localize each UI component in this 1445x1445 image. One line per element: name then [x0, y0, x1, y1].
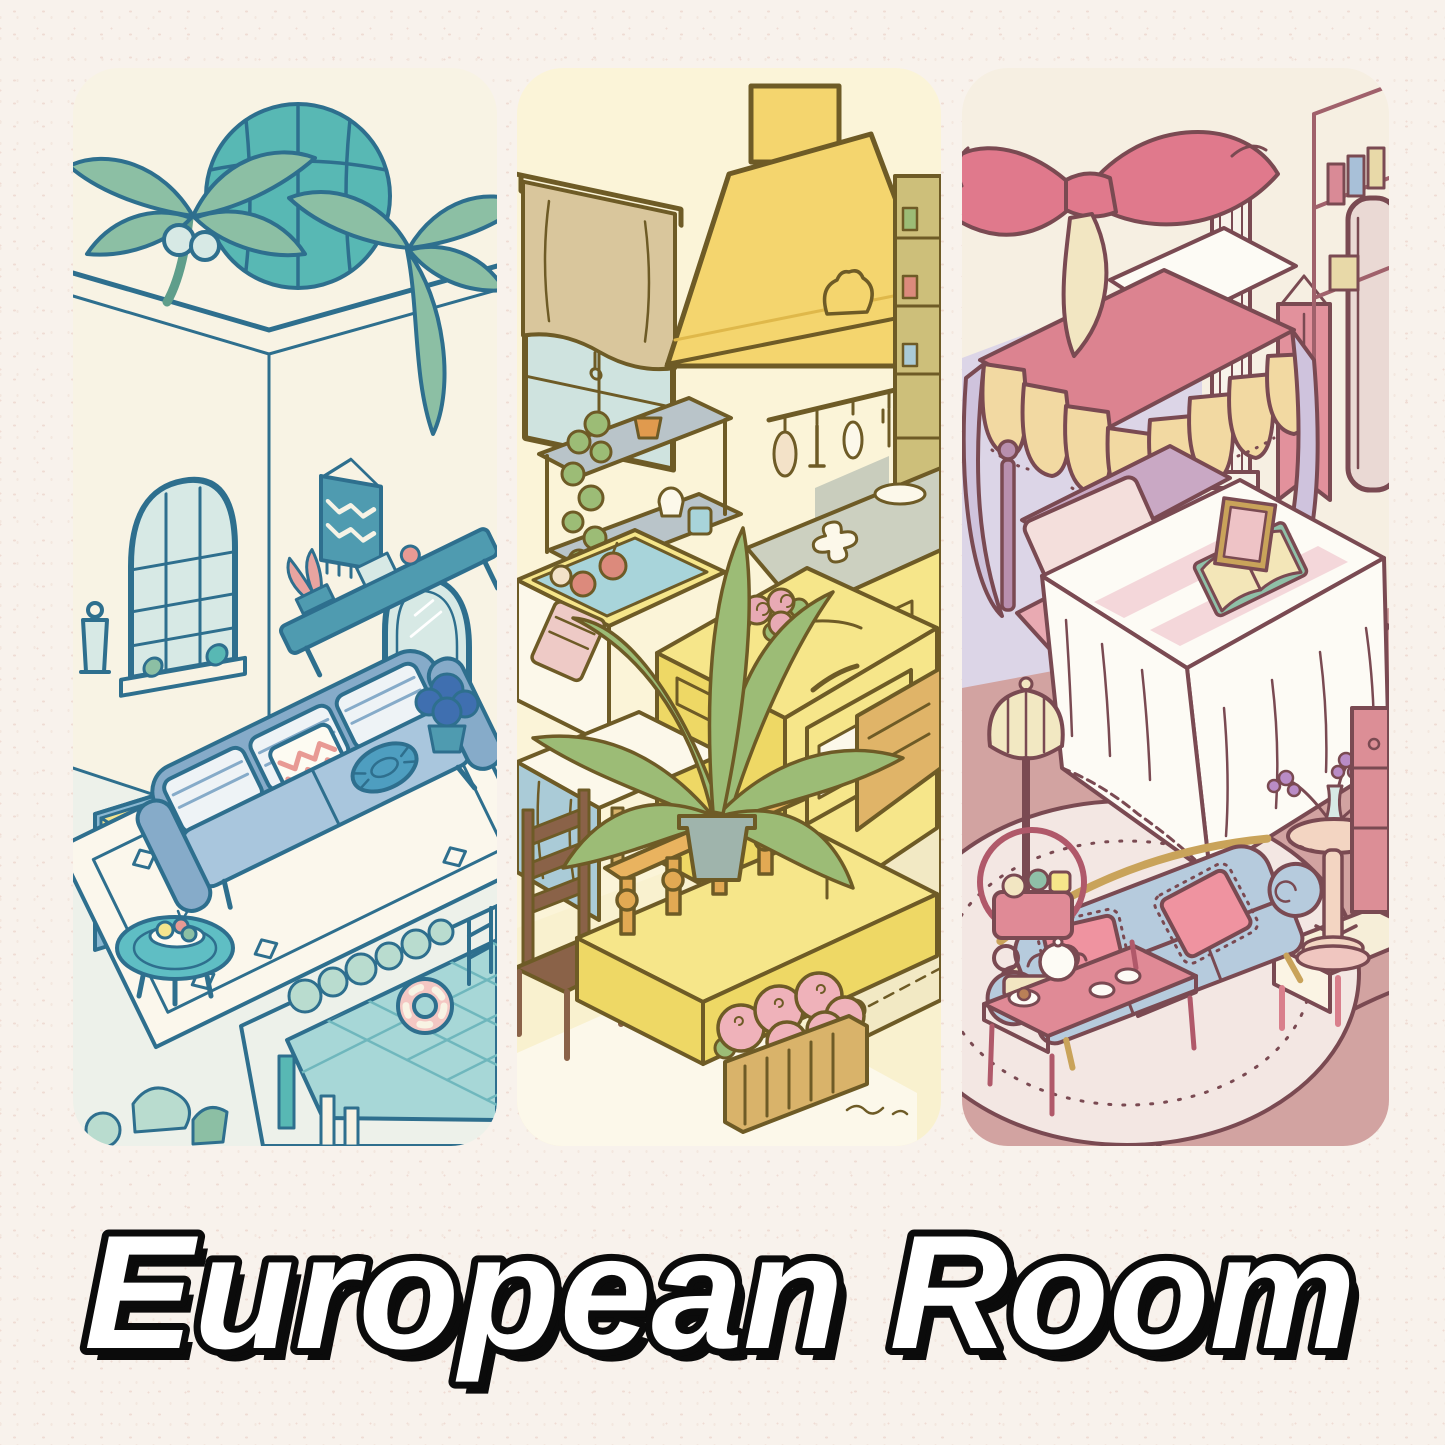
panel-yellow-kitchen-room [517, 68, 941, 1146]
panel-blue-mediterranean-room [73, 68, 497, 1146]
title-banner: European Room European Room [78, 1196, 1388, 1406]
pink-chest [1352, 708, 1389, 912]
yellow-kitchen-illustration [517, 68, 941, 1146]
panel-pink-bedroom-room [962, 68, 1389, 1146]
blue-room-illustration [73, 68, 497, 1146]
page-title: European Room [84, 1202, 1356, 1383]
standing-mirror [1348, 198, 1389, 490]
pink-bedroom-illustration [962, 68, 1389, 1146]
spice-cabinet [895, 176, 941, 486]
picture-frame [1215, 498, 1276, 571]
title-text-graphic: European Room European Room [78, 1196, 1388, 1406]
european-room-collage: European Room European Room [0, 0, 1445, 1445]
swim-ring-icon [398, 979, 452, 1033]
